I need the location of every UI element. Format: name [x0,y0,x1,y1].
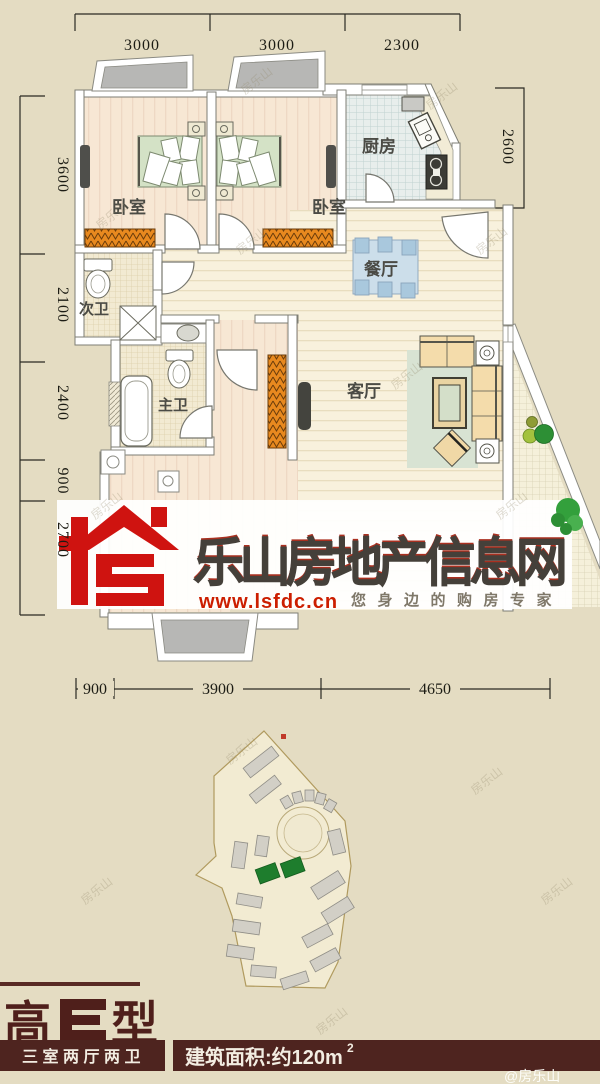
svg-text:www.lsfdc.cn: www.lsfdc.cn [198,591,338,613]
svg-text:4650: 4650 [419,681,451,698]
svg-text:900: 900 [83,681,107,698]
svg-text:次卫: 次卫 [79,300,109,318]
svg-text:卧室: 卧室 [312,197,346,217]
svg-text:2700: 2700 [54,522,71,558]
svg-text:3000: 3000 [259,37,295,54]
svg-text:三室两厅两卫: 三室两厅两卫 [22,1047,145,1066]
svg-text:乐山房地产信息网: 乐山房地产信息网 [193,535,565,593]
svg-text:2: 2 [347,1041,354,1055]
svg-text:餐厅: 餐厅 [364,259,398,279]
svg-text:2600: 2600 [499,129,516,165]
svg-text:3000: 3000 [124,37,160,54]
svg-text:2300: 2300 [384,37,420,54]
svg-text:建筑面积:约120m: 建筑面积:约120m [185,1045,343,1069]
svg-text:@房乐山: @房乐山 [504,1068,560,1084]
svg-text:厨房: 厨房 [362,136,396,156]
svg-text:3900: 3900 [202,681,234,698]
svg-text:您身边的购房专家: 您身边的购房专家 [350,591,563,609]
svg-text:2400: 2400 [54,385,71,421]
svg-text:2100: 2100 [54,287,71,323]
svg-text:900: 900 [54,468,71,495]
svg-text:主卫: 主卫 [158,396,188,414]
svg-text:客厅: 客厅 [346,381,381,401]
svg-text:3600: 3600 [54,157,71,193]
